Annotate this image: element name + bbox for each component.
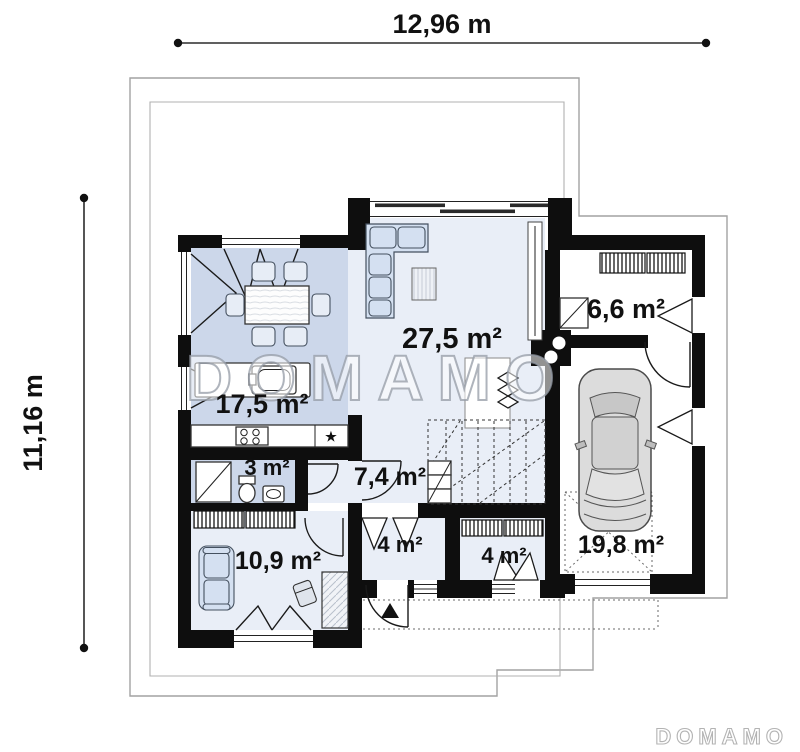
brand-logo: DOMAMO [655,724,788,749]
entrance-door [377,580,408,598]
sofa-armrest [203,604,230,610]
entrance-arrow-icon [381,603,399,618]
sofa-cushion [204,580,229,605]
toilet-bowl-icon [239,484,255,503]
wardrobe-cabinet [246,511,295,528]
wardrobe-cabinet [194,511,244,528]
wardrobe-cabinet [647,253,685,273]
window-kitchen-left-a [178,252,191,335]
dining-chair [226,294,244,316]
dining-chair [252,262,275,281]
room-label-utility: 6,6 m² [587,294,665,324]
sliding-panel [510,204,548,208]
room-label-garage: 19,8 m² [578,531,664,559]
wall-bedroom-right [348,503,362,648]
wall-bathroom-right [295,460,308,503]
sofa-cushion [398,227,425,248]
floor-plan-page: 12,96 m 11,16 m [0,0,800,752]
dimension-left: 11,16 m [18,194,88,652]
wall-hall-stub [348,415,362,461]
dimension-top-dot-left [174,39,182,47]
wardrobe-cabinet [600,253,645,273]
dimension-left-dot-bottom [80,644,88,652]
dining-chair [312,294,330,316]
wardrobe-cabinet [462,520,502,536]
floor-plan-svg: 12,96 m 11,16 m [0,0,800,752]
wall-wardrobe-top [418,503,545,518]
rug [412,268,436,300]
wardrobe-cabinet [504,520,543,536]
wall-garage-bottom-right [650,574,705,594]
room-label-living: 27,5 m² [402,323,502,355]
utility-room-fixtures [560,298,588,328]
room-label-wardrobe: 4 m² [481,543,526,568]
dining-table [245,286,309,324]
door-garage-side [692,408,705,446]
sofa-armrest [203,548,230,554]
sofa-cushion [204,553,229,578]
sliding-panel [440,210,515,214]
door-utility-garage [648,335,692,348]
dimension-width-label: 12,96 m [392,9,491,39]
room-label-kitchen: 17,5 m² [215,389,308,419]
sofa-cushion [369,254,391,275]
wall-bathroom-bottom [191,503,308,511]
desk [322,572,348,628]
sliding-panel [375,204,445,208]
kitchen-counter: ★ [191,425,348,447]
car-roof [592,417,638,469]
garage-door [575,574,650,594]
door-utility-exterior [692,297,705,333]
window-living-terrace [370,200,548,218]
room-label-hall: 7,4 m² [354,463,426,491]
corridor-floor [308,460,348,503]
room-label-entry: 4 m² [377,532,422,557]
car [575,369,656,531]
sofa-cushion [370,227,396,248]
dimension-left-dot-top [80,194,88,202]
dining-chair [284,262,307,281]
room-label-bedroom: 10,9 m² [235,547,321,575]
dimension-top-dot-right [702,39,710,47]
wall-main-right [545,250,560,580]
window-bedroom [234,630,313,648]
sofa-cushion [369,277,391,298]
room-label-bathroom: 3 m² [244,455,289,480]
wall-entry-wardrobe [445,503,460,598]
car-windshield [586,469,644,501]
sofa-cushion [369,300,391,316]
wall-top-right-wing [548,235,705,250]
cooker-star-icon: ★ [325,429,337,444]
window-kitchen-top [222,235,300,248]
dimension-top: 12,96 m [174,9,710,47]
car-rear-window [590,393,640,418]
dimension-height-label: 11,16 m [18,374,48,472]
